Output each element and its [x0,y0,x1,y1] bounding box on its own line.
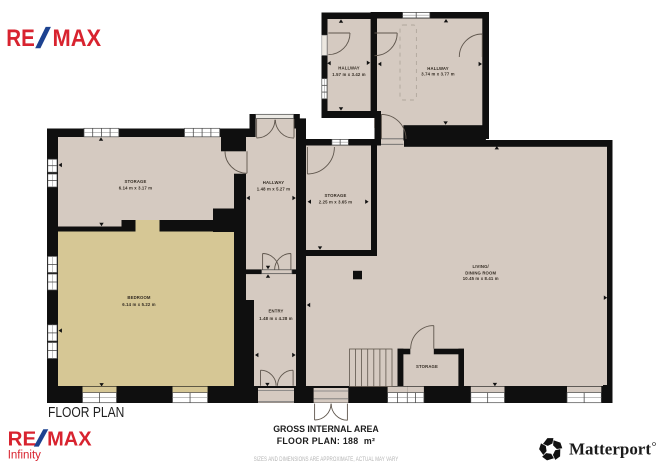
svg-text:Infinity: Infinity [8,449,41,461]
svg-text:LIVING/: LIVING/ [472,264,489,269]
svg-text:10.45 m x 8.41 m: 10.45 m x 8.41 m [463,276,499,281]
svg-text:6.14 m x 5.22 m: 6.14 m x 5.22 m [122,302,156,307]
svg-text:3.74 m x 3.77 m: 3.74 m x 3.77 m [421,72,455,77]
svg-text:HALLWAY: HALLWAY [263,180,284,185]
svg-text:1.48 m x 5.27 m: 1.48 m x 5.27 m [257,186,291,191]
svg-text:MAX: MAX [53,25,102,52]
svg-text:Matterport: Matterport [569,440,652,459]
svg-text:STORAGE: STORAGE [416,364,438,369]
svg-text:MAX: MAX [47,428,92,450]
svg-text:1.48 m x 4.28 m: 1.48 m x 4.28 m [259,316,293,321]
svg-text:1.57 m x 3.42 m: 1.57 m x 3.42 m [332,72,366,77]
svg-text:HALLWAY: HALLWAY [427,66,448,71]
svg-text:STORAGE: STORAGE [125,179,147,184]
svg-text:STORAGE: STORAGE [325,193,347,198]
svg-text:RE: RE [6,25,35,52]
svg-text:SIZES AND DIMENSIONS ARE APPRO: SIZES AND DIMENSIONS ARE APPROXIMATE, AC… [254,456,399,463]
svg-text:HALLWAY: HALLWAY [338,65,359,70]
svg-text:6.14 m x 3.17 m: 6.14 m x 3.17 m [119,185,153,190]
svg-text:FLOOR PLAN: FLOOR PLAN [48,404,124,420]
svg-text:DINING ROOM: DINING ROOM [465,271,496,276]
svg-text:BEDROOM: BEDROOM [127,295,151,300]
svg-text:RE: RE [8,428,37,450]
svg-text:ENTRY: ENTRY [269,309,284,314]
svg-text:2.25 m x 3.65 m: 2.25 m x 3.65 m [319,200,353,205]
svg-text:FLOOR PLAN: 188 m²: FLOOR PLAN: 188 m² [277,436,376,446]
svg-text:GROSS INTERNAL AREA: GROSS INTERNAL AREA [273,424,379,434]
